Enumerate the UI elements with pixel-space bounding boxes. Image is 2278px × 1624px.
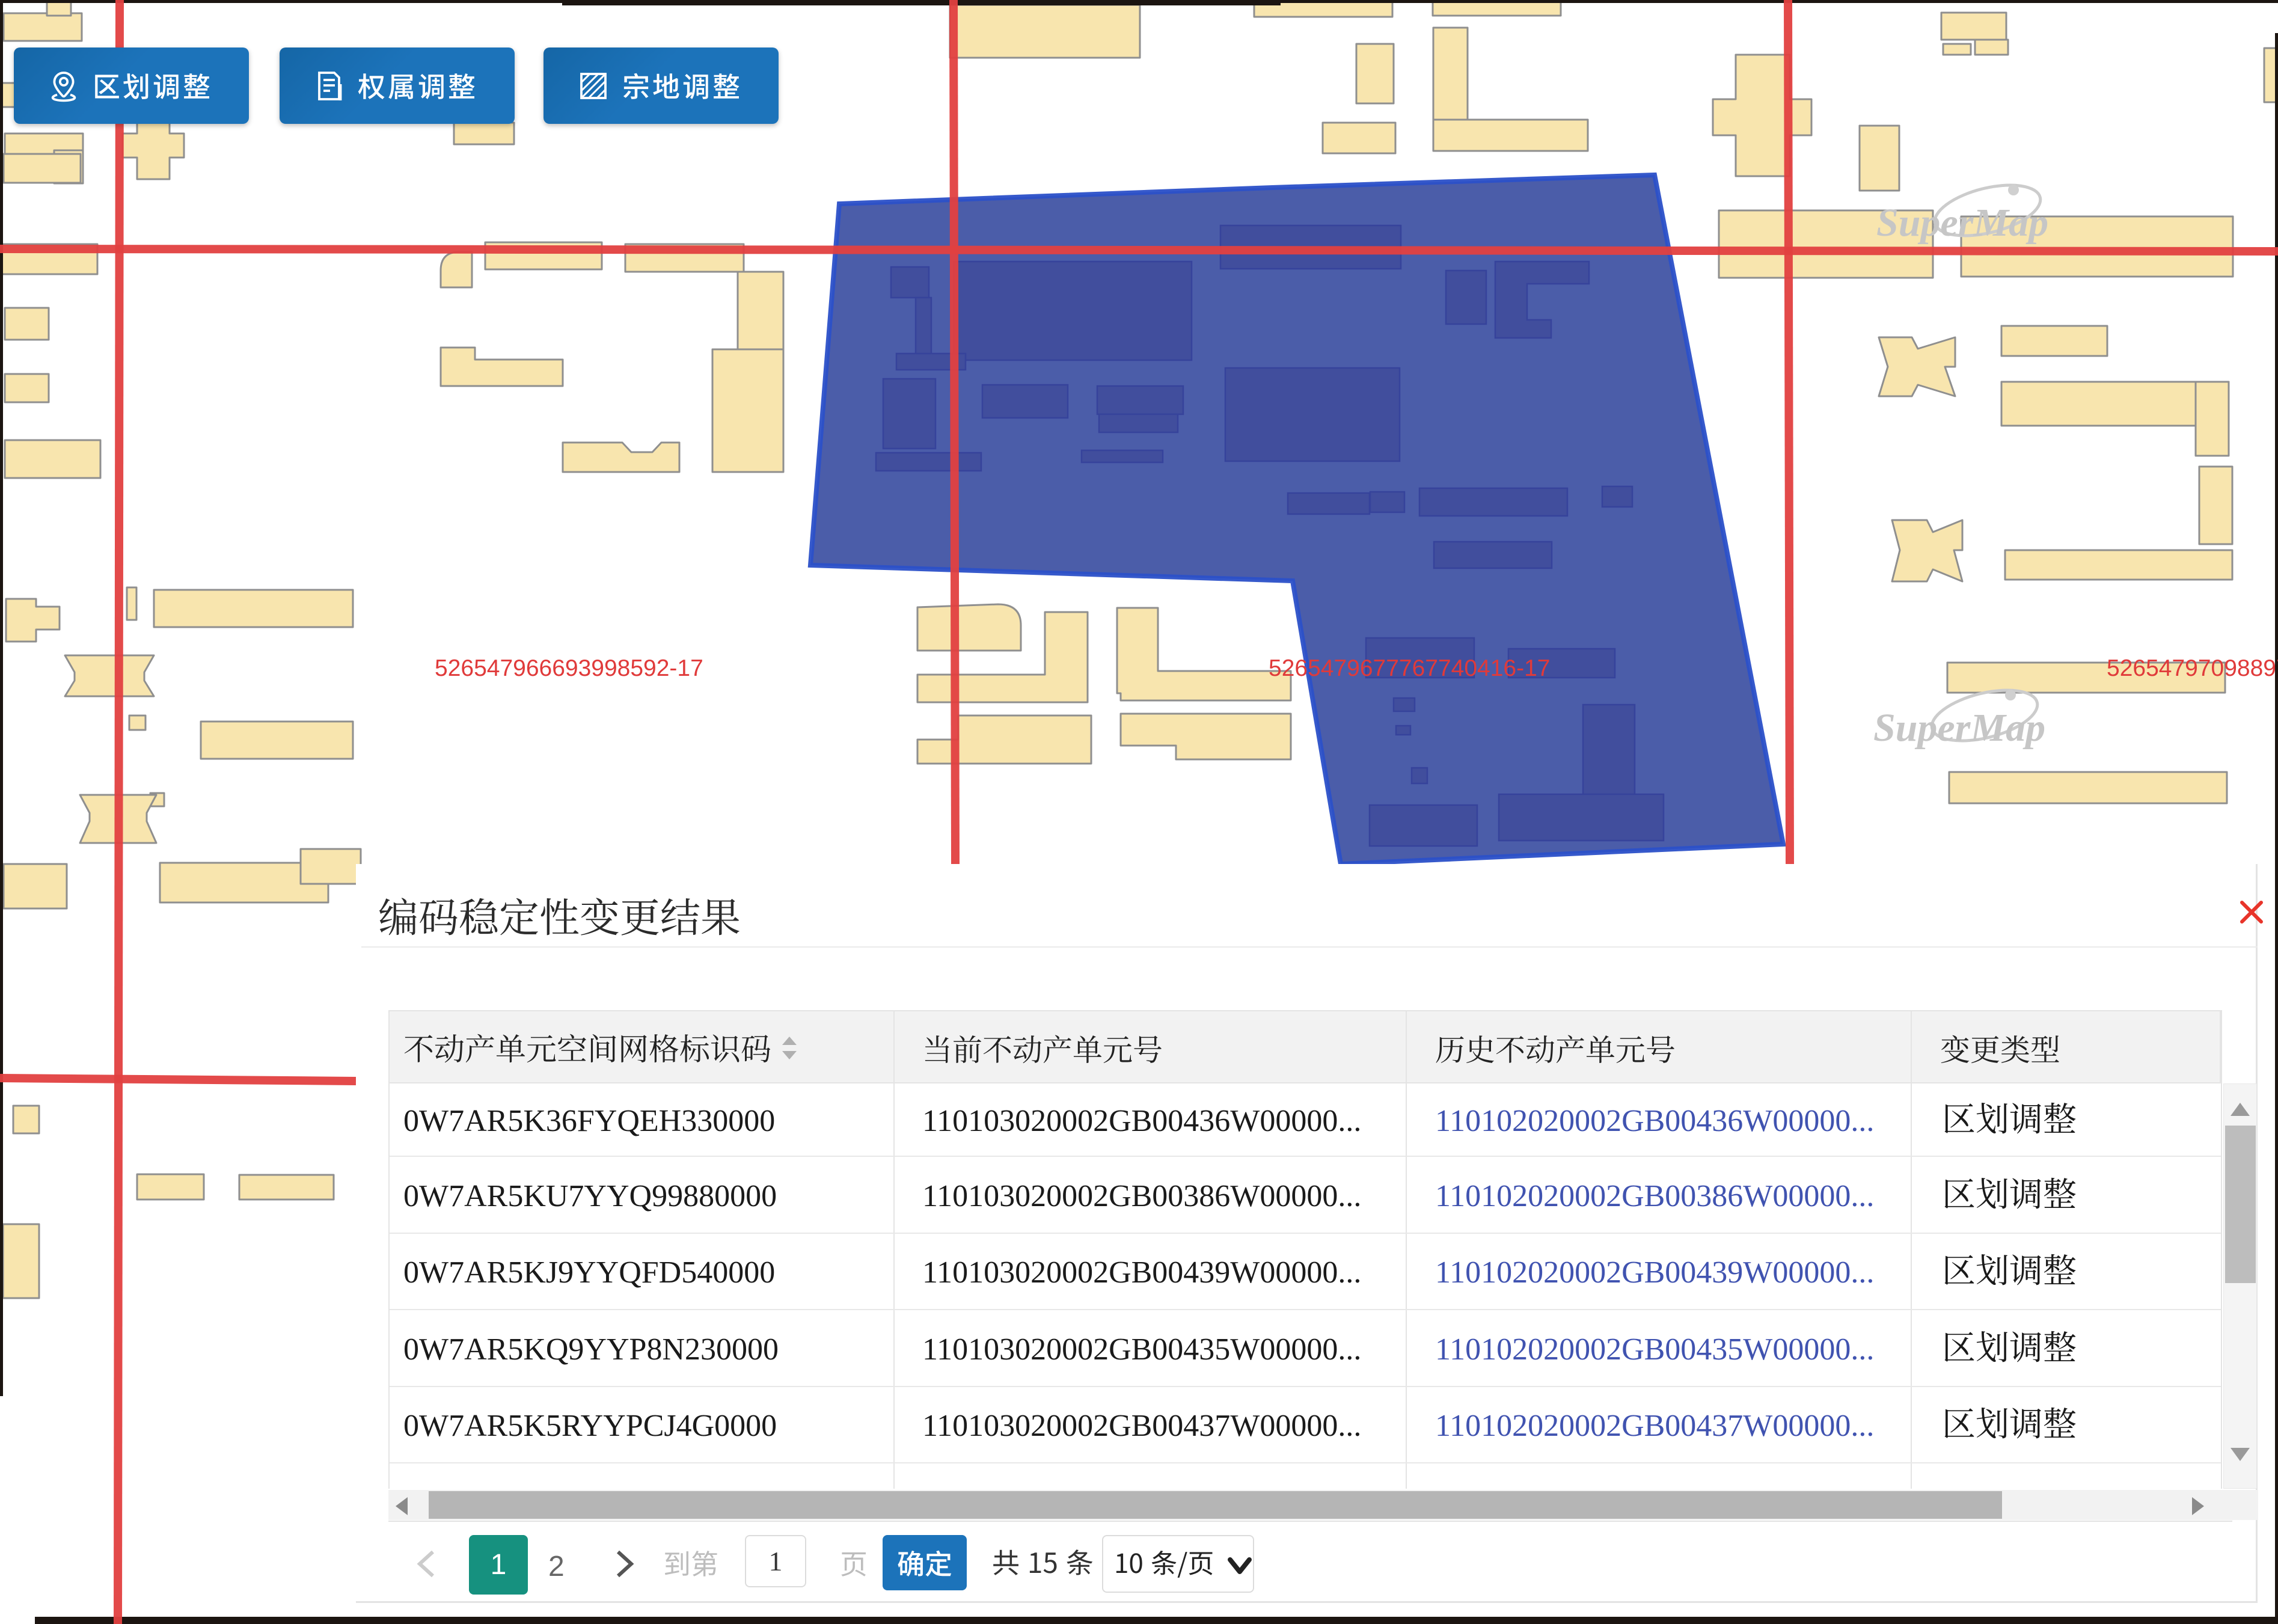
svg-text:SuperMap: SuperMap bbox=[1876, 201, 2048, 245]
svg-text:526547966693998592-17: 526547966693998592-17 bbox=[435, 655, 703, 681]
svg-text:5265479677767740416-17: 5265479677767740416-17 bbox=[1269, 655, 1550, 681]
svg-text:SuperMap: SuperMap bbox=[1873, 706, 2045, 750]
svg-text:5265479709889758: 5265479709889758 bbox=[2107, 655, 2278, 681]
